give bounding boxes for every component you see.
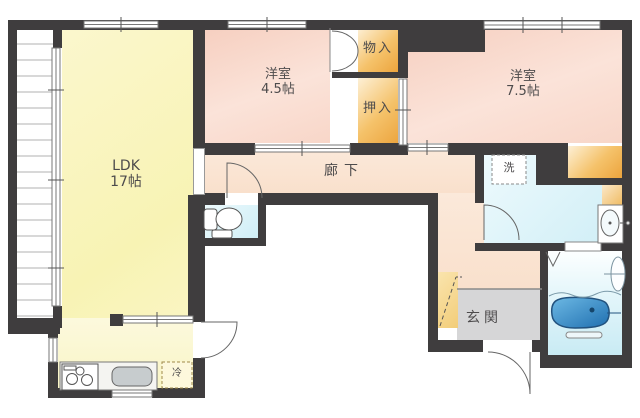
floor-plan: LDK 17帖 洋室 4.5帖 洋室 7.5帖 物入 押入 廊下 玄関 洗 冷 — [0, 0, 640, 418]
vanity-sink-icon — [598, 205, 630, 243]
bathtub-icon — [549, 291, 621, 338]
opening-ldk-hallway — [194, 149, 205, 195]
label-storage: 物入 — [352, 42, 404, 57]
label-closet: 押入 — [352, 102, 404, 117]
window-ldk-west — [48, 48, 64, 306]
toilet-icon — [204, 208, 242, 238]
door-entrance — [488, 352, 530, 394]
door-toilet — [227, 163, 262, 198]
label-bedroom-45: 洋室 4.5帖 — [240, 68, 316, 98]
bathroom-door-band — [565, 242, 601, 251]
label-hallway: 廊下 — [314, 163, 374, 179]
label-ldk: LDK 17帖 — [88, 158, 164, 190]
stove-icon — [62, 364, 98, 390]
door-washroom — [484, 205, 519, 240]
kitchen-counter — [60, 362, 157, 390]
label-washer: 洗 — [492, 162, 526, 175]
bedroom-45-size: 4.5帖 — [240, 83, 316, 98]
window-top-bedroom75 — [484, 17, 600, 33]
bathroom-column-icon — [604, 257, 625, 291]
ldk-name: LDK — [88, 158, 164, 174]
bedroom-75-size: 7.5帖 — [485, 85, 561, 100]
label-bedroom-75: 洋室 7.5帖 — [485, 70, 561, 100]
label-fridge: 冷 — [162, 368, 192, 380]
plan-linework — [0, 0, 640, 418]
sliding-door-bedroom75 — [408, 140, 448, 155]
door-kitchen-back — [201, 322, 237, 358]
sink-icon — [112, 367, 152, 386]
window-kitchen-west — [49, 338, 57, 362]
sliding-door-bedroom45 — [255, 141, 350, 156]
ldk-size: 17帖 — [88, 174, 164, 190]
balcony-slats — [17, 44, 53, 316]
bedroom-75-name: 洋室 — [485, 70, 561, 85]
label-entrance: 玄関 — [454, 310, 514, 326]
sliding-door-ldk-kitchen — [123, 312, 193, 327]
window-top-bedroom45 — [228, 17, 306, 32]
bedroom-45-name: 洋室 — [240, 68, 316, 83]
window-top-ldk — [84, 17, 158, 32]
bathroom-folding-door — [546, 252, 560, 266]
